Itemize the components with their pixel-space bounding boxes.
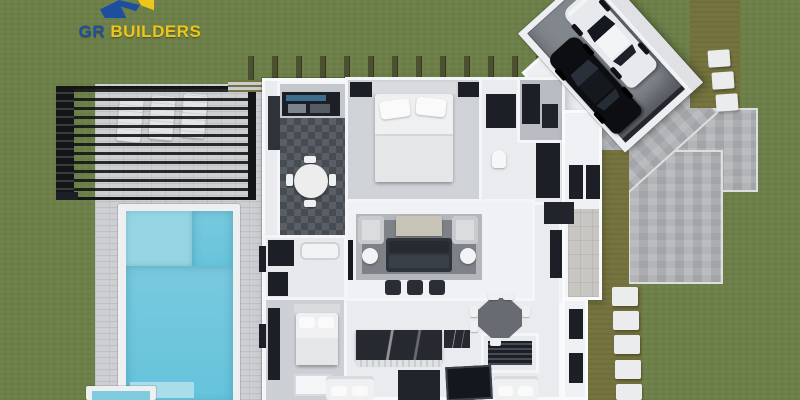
dining-nook — [470, 294, 530, 346]
tv-panel — [348, 240, 353, 280]
olive-strip-side — [599, 150, 629, 290]
window — [259, 324, 266, 348]
side-table — [362, 248, 378, 264]
dining-chair — [503, 292, 514, 300]
dining-room — [280, 84, 348, 238]
stepping-stone — [715, 93, 738, 111]
wardrobe — [268, 308, 280, 380]
bar-appliance — [310, 104, 330, 113]
pillow — [518, 386, 533, 396]
bar-stool — [407, 280, 423, 295]
pergola-post — [56, 192, 78, 200]
window — [569, 353, 583, 383]
armchair — [452, 216, 478, 244]
brand-gr: GR — [79, 22, 106, 41]
stepping-stone — [614, 335, 640, 354]
logo-icon — [98, 0, 156, 20]
window — [569, 309, 583, 339]
pool-shallow-ledge — [126, 211, 192, 266]
side-fence-rails — [228, 80, 262, 92]
wardrobe — [350, 82, 372, 97]
kitchen-island — [356, 330, 442, 360]
bed-headboard — [372, 82, 456, 94]
bed-duvet — [296, 338, 338, 365]
entry-door — [550, 230, 562, 278]
bed-bottom — [494, 376, 538, 400]
sofa-cushions — [389, 241, 449, 253]
brand-builders: BUILDERS — [110, 22, 201, 41]
pool — [118, 204, 240, 400]
bar-stool — [385, 280, 401, 295]
master-bedroom — [348, 80, 482, 202]
bar-appliance — [288, 104, 306, 113]
bathtub — [300, 242, 340, 260]
guest-bed — [294, 304, 340, 368]
guest-bathroom — [266, 238, 344, 300]
wardrobe — [522, 84, 540, 124]
toilet — [492, 150, 506, 168]
fence-post — [296, 56, 301, 80]
brand-text: GR BUILDERS — [60, 22, 220, 42]
pillow — [331, 386, 347, 396]
pool-water — [192, 211, 233, 273]
fence-post — [464, 56, 469, 80]
dining-chair — [470, 306, 478, 317]
sofa-seat — [389, 255, 449, 268]
fence-post — [488, 56, 493, 80]
pillow — [299, 317, 315, 328]
pillow — [498, 386, 513, 396]
bed-duvet — [375, 134, 453, 182]
sofa — [386, 238, 452, 272]
island-base — [356, 360, 442, 367]
fence-post — [512, 56, 517, 80]
dining-chair — [488, 292, 499, 300]
wardrobe — [458, 82, 480, 97]
dining-chair — [304, 156, 316, 163]
window — [259, 246, 266, 272]
master-bed — [372, 82, 456, 186]
fence-post — [320, 56, 325, 80]
pillow — [352, 386, 368, 396]
pergola — [56, 86, 256, 200]
dining-chair — [329, 174, 336, 186]
vanity — [486, 94, 516, 128]
bottom-right-wing — [562, 298, 588, 400]
window — [586, 165, 600, 199]
stepping-stone — [615, 360, 641, 379]
dining-table-round — [294, 164, 328, 198]
pillow — [318, 317, 334, 328]
corner-room — [520, 80, 562, 140]
spa-water — [92, 391, 150, 400]
wardrobe — [536, 142, 560, 198]
entry-bench — [544, 202, 574, 224]
bar-sink — [286, 95, 326, 101]
stepping-stone — [616, 384, 642, 400]
spa — [86, 386, 156, 400]
side-cabinet — [268, 96, 280, 150]
dining-chair — [470, 321, 478, 332]
pergola-louver-panel — [56, 86, 74, 200]
pillow — [415, 96, 447, 117]
stepping-stone — [711, 71, 734, 89]
fence-post — [416, 56, 421, 80]
dining-chair — [490, 338, 501, 346]
shower — [268, 240, 294, 266]
side-table — [460, 248, 476, 264]
stepping-stone — [613, 311, 639, 330]
logo-icon-yellow-wedge — [138, 0, 154, 12]
octagon-table — [478, 298, 522, 338]
stepping-stone — [612, 287, 638, 306]
logo: GR BUILDERS — [60, 0, 220, 46]
bar-stool — [429, 280, 445, 295]
fence-post — [248, 56, 253, 80]
pergola-slats — [56, 86, 256, 200]
hall-dark-floor — [398, 370, 440, 400]
floor-plan-render: GR BUILDERS — [0, 0, 800, 400]
coffee-table — [396, 216, 442, 236]
window — [569, 165, 583, 199]
fence-post — [368, 56, 373, 80]
dining-chair — [522, 306, 530, 317]
armchair — [358, 216, 384, 244]
pergola-beam — [248, 86, 256, 200]
stepping-stone — [707, 49, 730, 67]
dining-chair — [286, 174, 293, 186]
fence-post — [272, 56, 277, 80]
pool-water — [126, 266, 233, 400]
kitchen-counter — [444, 330, 470, 348]
bed-headboard — [294, 304, 340, 313]
logo-icon-blue-ribbon — [100, 0, 140, 18]
vanity — [268, 272, 288, 296]
bench-seat — [542, 104, 558, 128]
bed-bottom — [326, 376, 374, 400]
fence-post — [392, 56, 397, 80]
fence-post — [344, 56, 349, 80]
fence-post — [440, 56, 445, 80]
hall-dark-floor — [445, 365, 493, 400]
dining-chair — [304, 200, 316, 207]
